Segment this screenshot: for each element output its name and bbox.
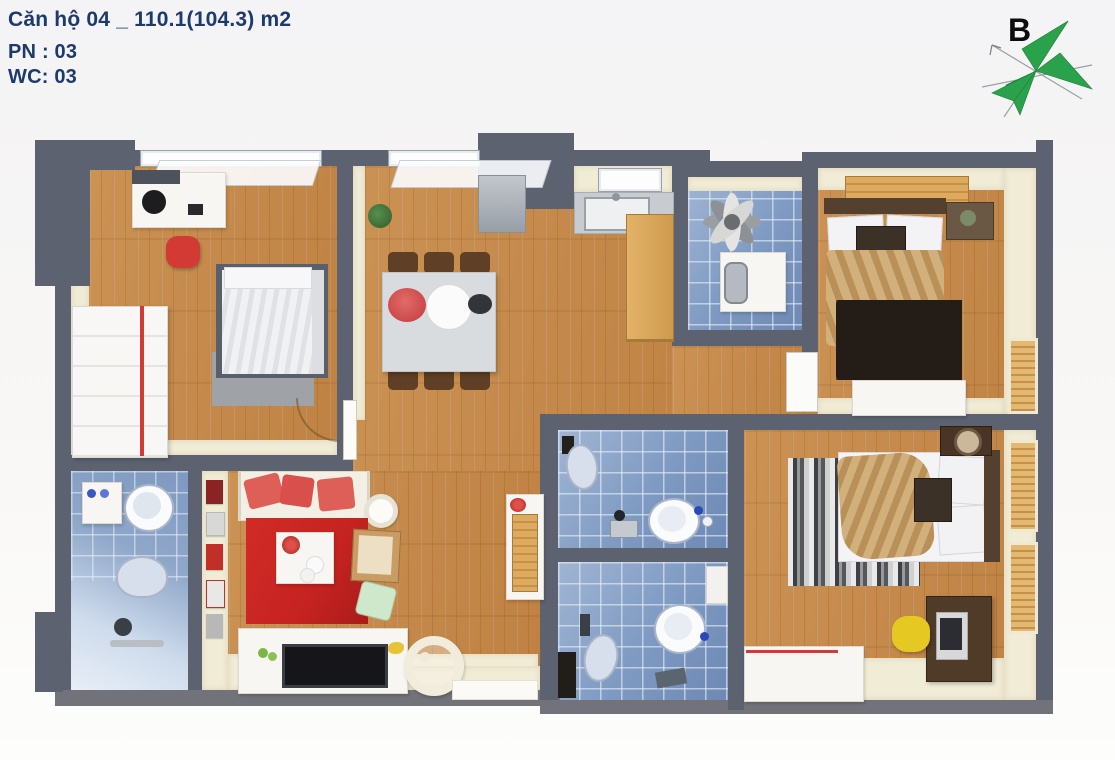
laundry-left-wall: [672, 161, 688, 346]
bedroom3-yellow-chair: [892, 616, 930, 652]
bathroom1-sink-bowl: [133, 492, 161, 519]
dining-window-pane: [390, 160, 551, 188]
bathroom1-right-wall: [188, 471, 202, 690]
floor-plan-screenshot: Căn hộ 04 _ 110.1(104.3) m2 PN : 03 WC: …: [0, 0, 1115, 760]
wc2-accessory: [702, 516, 713, 527]
bedroom3-clock: [954, 428, 982, 456]
laundry-flower-decor: [700, 190, 764, 254]
compass-rose-icon: B: [970, 5, 1100, 127]
dining-white-plate: [426, 284, 472, 330]
wc-block-top-wall: [540, 414, 744, 430]
corridor-door-leaf: [786, 352, 818, 412]
bedroom1-red-chair: [166, 236, 200, 268]
laundry-bottom-wall: [672, 330, 818, 346]
bottom-wall-right: [540, 700, 1053, 714]
bedroom1-bed-mattress-edge: [312, 270, 324, 374]
entry-door-mat: [452, 680, 538, 700]
dining-left-wallface: [353, 166, 365, 420]
dining-red-cake: [388, 288, 426, 322]
bedroom3-headboard: [984, 450, 1000, 562]
sofa-red-pillow: [279, 474, 315, 508]
laundry-top-wall: [672, 161, 818, 177]
wc3-sink-bowl: [664, 613, 692, 640]
bedroom2-dresser: [852, 380, 966, 416]
living-wood-chair-cushion: [357, 535, 393, 575]
bedroom1-door-leaf: [343, 400, 357, 460]
bathroom1-toilet: [116, 556, 168, 598]
bedroom1-laptop: [188, 204, 203, 215]
living-round-tray: [364, 494, 398, 528]
decor-green-apple: [268, 652, 277, 661]
wc-count-label: WC: 03: [8, 66, 77, 89]
wc3-shower-fixture: [580, 614, 590, 636]
wc2-accessory: [694, 506, 703, 515]
right-outer-wall: [1036, 140, 1053, 712]
dining-dark-bowl: [468, 294, 492, 314]
bedroom3-screen: [940, 618, 962, 650]
bedroom3-bench-red-line: [746, 650, 838, 653]
bedroom3-window-blind: [1008, 542, 1038, 634]
laundry-top-wallface: [688, 177, 802, 191]
bathroom1-washlet-dial: [87, 489, 96, 498]
dining-chair: [460, 252, 490, 274]
bedroom1-bed-pillows: [224, 267, 312, 289]
dining-chair: [388, 252, 418, 274]
dining-chair: [424, 252, 454, 274]
kitchen-faucet: [612, 193, 620, 201]
wall-picture-frame: [206, 580, 225, 608]
wc2-drain: [614, 510, 625, 521]
wc3-shelf: [706, 566, 728, 604]
dining-plant: [368, 204, 392, 228]
wall-picture-frame: [206, 512, 225, 536]
decor-green-apple: [258, 648, 268, 658]
sofa-red-pillow: [316, 476, 355, 512]
bedroom2-headboard: [824, 198, 946, 214]
hall-console-top: [512, 514, 538, 592]
wc-divider-wall: [558, 548, 728, 562]
flower-center: [724, 214, 740, 230]
bathroom1-washlet-dial: [100, 489, 109, 498]
bedroom3-top-wall: [744, 414, 1036, 430]
coffee-table-plate: [300, 568, 315, 583]
page-title: Căn hộ 04 _ 110.1(104.3) m2: [8, 8, 291, 32]
wc2-sink-bowl: [658, 506, 686, 532]
bathroom1-shower-head: [114, 618, 132, 636]
bedroom1-desk-chair: [142, 190, 166, 214]
washing-machine-door: [724, 262, 748, 304]
bedroom1-desk-shelf: [132, 170, 180, 184]
wall-picture-frame: [206, 480, 223, 504]
bedroom2-left-wall: [802, 152, 818, 352]
bedroom1-wardrobe: [72, 306, 168, 458]
bedroom3-window-blind: [1008, 440, 1038, 532]
bathroom1-shower-bar: [110, 640, 164, 647]
kitchen-window: [598, 168, 662, 192]
bottom-left-wall-block: [35, 612, 63, 692]
wc3-doorway-recess: [558, 652, 576, 698]
kitchen-fridge: [478, 175, 526, 233]
wc2-floor-faucet: [610, 520, 638, 538]
bedroom2-side-plant: [960, 210, 976, 226]
compass-label: B: [1008, 12, 1031, 48]
tv-screen: [282, 644, 388, 688]
wall-picture-frame: [206, 544, 223, 570]
hall-fan-hub: [420, 652, 430, 662]
hall-console-flowers: [510, 498, 526, 512]
wc-block-right-wall: [728, 414, 744, 710]
wall-picture-frame: [206, 614, 223, 638]
bedroom3-accent-pillow: [914, 478, 952, 522]
decor-yellow-flowers: [388, 642, 404, 654]
bedroom2-window-blind: [1008, 338, 1038, 414]
bedroom3-bench: [744, 646, 864, 702]
bedroom2-black-rug: [836, 300, 962, 380]
kitchen-tall-cabinet: [626, 214, 674, 342]
bedroom1-wardrobe-red-stripe: [140, 306, 144, 456]
bedroom-count-label: PN : 03: [8, 41, 77, 64]
bedroom2-top-wall: [818, 152, 1038, 168]
wc3-accessory: [700, 632, 709, 641]
coffee-table-flowers: [282, 536, 300, 554]
